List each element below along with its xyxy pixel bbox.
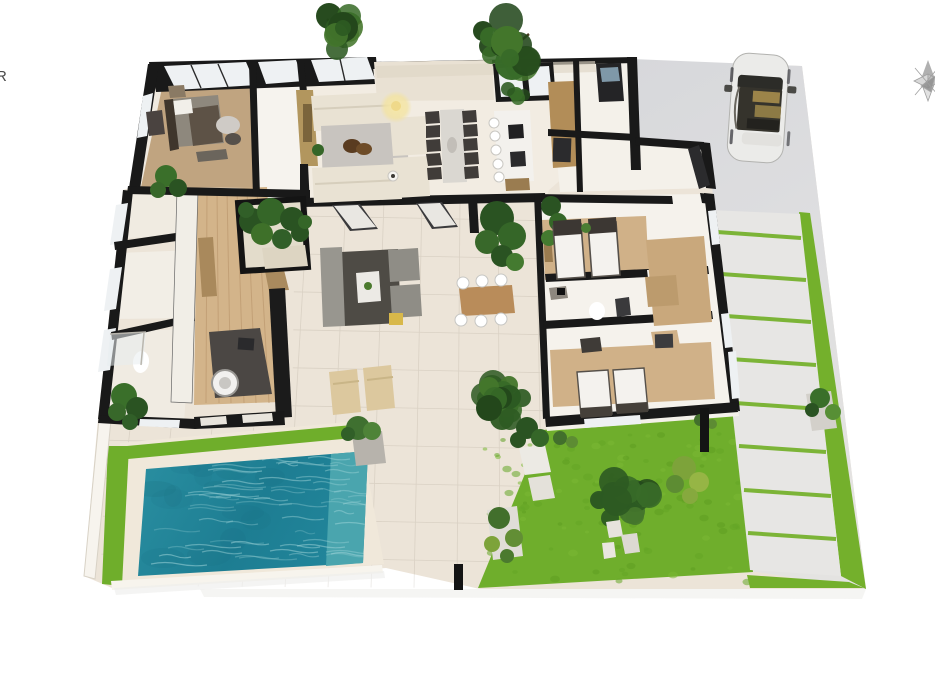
svg-text:R: R — [0, 68, 7, 85]
